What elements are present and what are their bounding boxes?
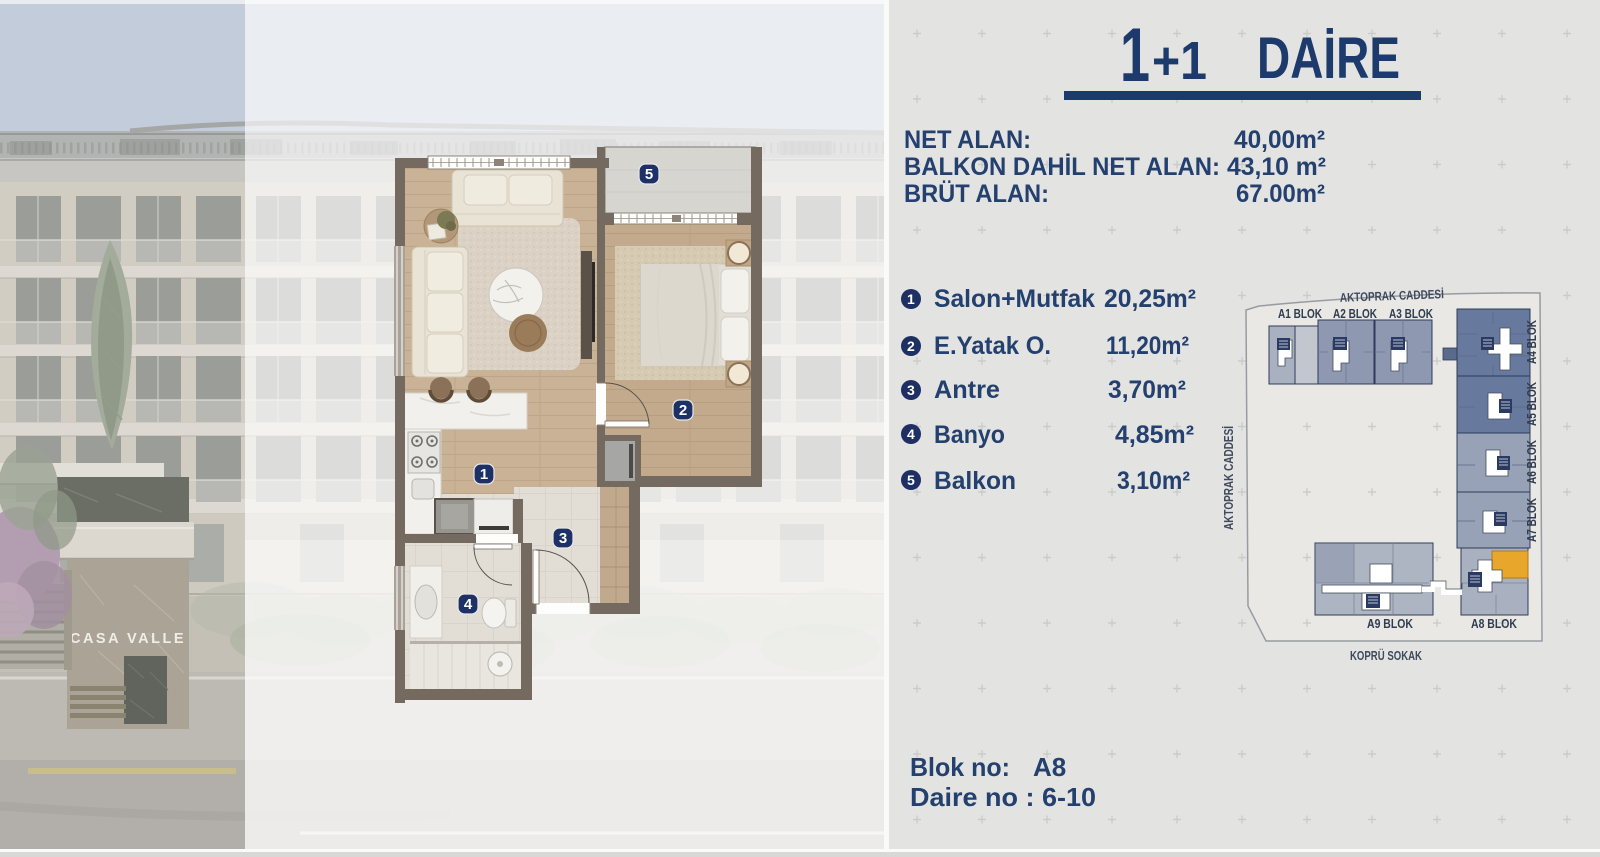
svg-text:KOPRÜ SOKAK: KOPRÜ SOKAK [1350, 648, 1422, 663]
svg-text:Daire no : 6-10: Daire no : 6-10 [910, 782, 1096, 812]
svg-text:Balkon: Balkon [934, 467, 1016, 495]
svg-text:Banyo: Banyo [934, 421, 1005, 449]
svg-text:40,00m²: 40,00m² [1234, 126, 1325, 154]
svg-text:11,20m²: 11,20m² [1106, 332, 1189, 360]
svg-text:A7 BLOK: A7 BLOK [1524, 498, 1539, 542]
svg-text:5: 5 [645, 166, 653, 183]
svg-text:DAİRE: DAİRE [1257, 26, 1400, 91]
svg-text:43,10 m²: 43,10 m² [1227, 153, 1326, 181]
svg-text:AKTOPRAK CADDESİ: AKTOPRAK CADDESİ [1221, 426, 1236, 530]
svg-text:3: 3 [907, 382, 915, 398]
svg-text:3: 3 [559, 530, 567, 547]
svg-text:20,25m²: 20,25m² [1104, 285, 1196, 313]
svg-text:A6 BLOK: A6 BLOK [1524, 440, 1539, 484]
svg-text:+1: +1 [1152, 31, 1207, 91]
svg-text:BALKON DAHİL NET ALAN:: BALKON DAHİL NET ALAN: [904, 153, 1220, 181]
svg-text:A8 BLOK: A8 BLOK [1471, 616, 1517, 631]
svg-text:NET ALAN:: NET ALAN: [904, 126, 1031, 154]
svg-text:BRÜT ALAN:: BRÜT ALAN: [904, 179, 1049, 208]
svg-text:E.Yatak O.: E.Yatak O. [934, 332, 1051, 360]
svg-text:A8: A8 [1033, 752, 1066, 782]
svg-text:3,10m²: 3,10m² [1117, 467, 1190, 495]
svg-text:Salon+Mutfak: Salon+Mutfak [934, 285, 1095, 313]
svg-text:67.00m²: 67.00m² [1236, 180, 1325, 208]
svg-text:A1 BLOK: A1 BLOK [1278, 306, 1322, 321]
svg-text:4: 4 [464, 596, 473, 613]
svg-text:4,85m²: 4,85m² [1115, 421, 1194, 449]
svg-text:Antre: Antre [934, 376, 1000, 404]
svg-text:5: 5 [907, 472, 915, 488]
svg-text:CASA VALLE: CASA VALLE [70, 631, 186, 647]
svg-text:1: 1 [1120, 13, 1150, 98]
svg-text:1: 1 [907, 291, 915, 307]
svg-text:3,70m²: 3,70m² [1108, 376, 1186, 404]
svg-text:Blok no:: Blok no: [910, 752, 1010, 782]
svg-text:2: 2 [679, 402, 687, 419]
svg-text:1: 1 [480, 466, 488, 483]
svg-text:A3 BLOK: A3 BLOK [1389, 306, 1433, 321]
svg-text:A4 BLOK: A4 BLOK [1524, 320, 1539, 364]
svg-text:A9 BLOK: A9 BLOK [1367, 616, 1413, 631]
svg-text:A2 BLOK: A2 BLOK [1333, 306, 1377, 321]
svg-text:A5 BLOK: A5 BLOK [1524, 382, 1539, 426]
svg-text:4: 4 [907, 426, 915, 442]
svg-text:2: 2 [907, 338, 915, 354]
